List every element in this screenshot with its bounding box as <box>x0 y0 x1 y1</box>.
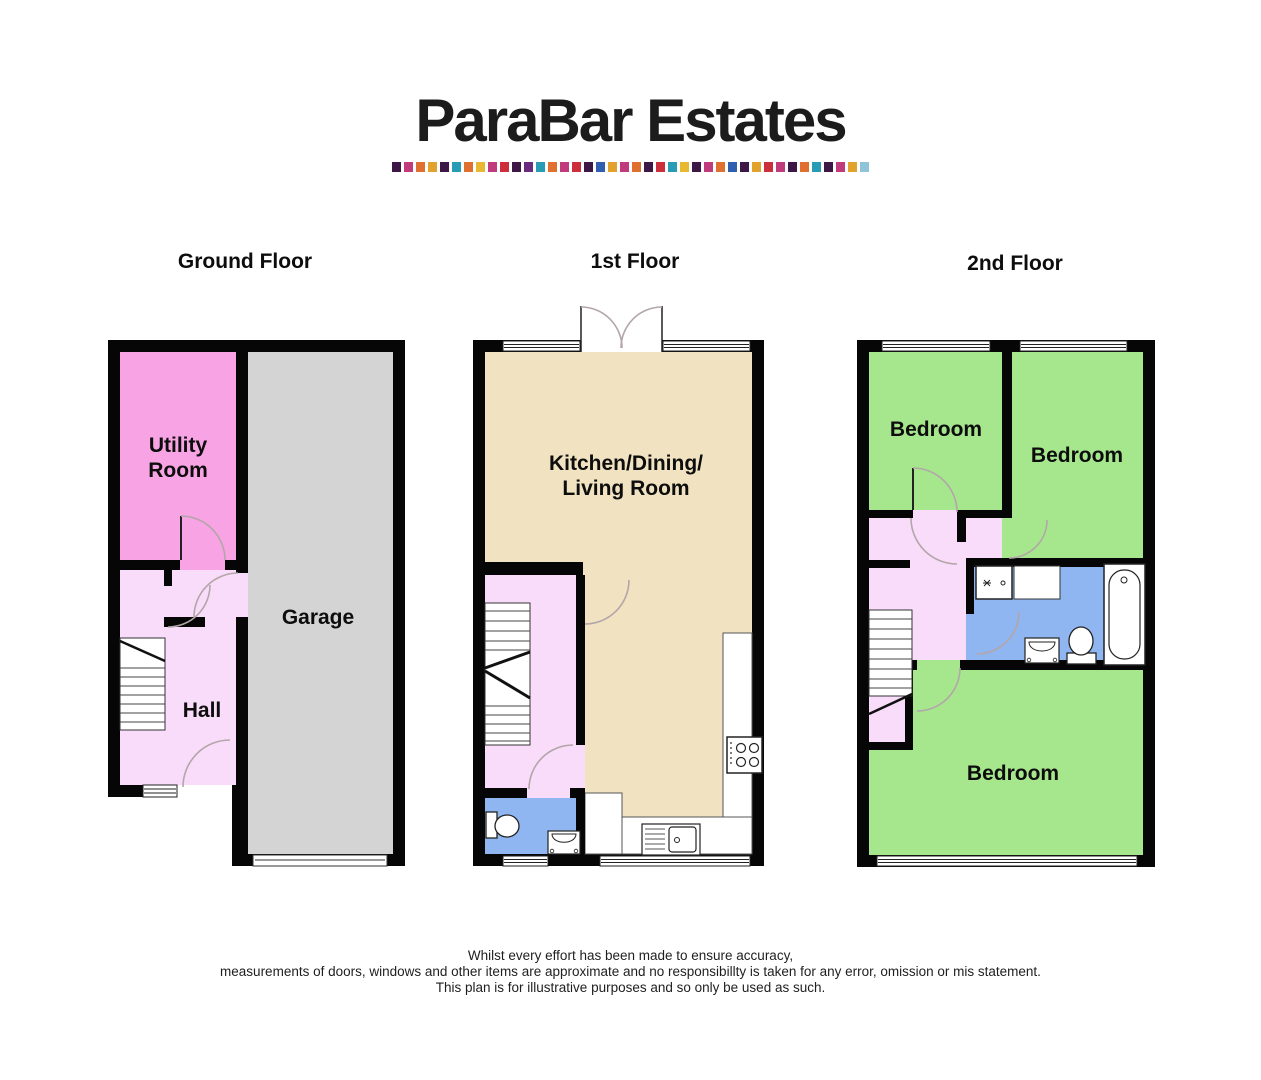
hall-window <box>143 785 177 797</box>
bedroom-front-left-window <box>882 341 990 351</box>
floorplan-page: { "logo": { "title": "ParaBar Estates", … <box>0 0 1261 1080</box>
hob <box>727 737 762 773</box>
disclaimer-line1: Whilst every effort has been made to ens… <box>0 948 1261 964</box>
front-door-opening <box>177 785 232 797</box>
bathtub <box>1104 564 1145 665</box>
second-floor-title: 2nd Floor <box>967 252 1063 275</box>
garage-floor <box>248 352 393 854</box>
bathroom-counter <box>1014 566 1060 599</box>
floor-plans-canvas: Ground Floor 1st Floor 2nd Floor <box>0 0 1261 1080</box>
bedroom-front-left-door-opening <box>913 510 957 518</box>
utility-door-opening <box>180 560 225 570</box>
bedroom-front-right-window <box>1020 341 1127 351</box>
utility-room-label-line1: Utility <box>149 434 208 457</box>
shower-cubicle <box>976 566 1012 599</box>
garage-door-opening <box>236 573 248 617</box>
bathroom-door-opening <box>966 614 974 660</box>
wc-door-opening <box>576 745 585 788</box>
ground-floor-title: Ground Floor <box>178 250 312 273</box>
disclaimer-line2: measurements of doors, windows and other… <box>0 964 1261 980</box>
bedroom-rear-door-opening <box>917 660 960 670</box>
garage-label: Garage <box>282 606 354 629</box>
wc-window <box>503 856 548 866</box>
first-floor-title: 1st Floor <box>591 250 680 273</box>
kitchen-label-line1: Kitchen/Dining/ <box>549 452 703 475</box>
french-doors <box>581 306 662 352</box>
hall-label: Hall <box>183 699 222 722</box>
first-floor-stairs <box>485 603 530 745</box>
bedroom-rear-label: Bedroom <box>967 762 1059 785</box>
wc-basin <box>548 831 580 854</box>
kitchen-window-bottom <box>600 856 750 866</box>
utility-room-label-line2: Room <box>148 459 208 482</box>
disclaimer: Whilst every effort has been made to ens… <box>0 948 1261 996</box>
bedroom-front-right-door-opening <box>1002 518 1012 558</box>
bedroom-front-right-label: Bedroom <box>1031 444 1123 467</box>
second-floor-plan: Bedroom Bedroom Bedroom <box>857 340 1155 867</box>
kitchen-window-top-left <box>503 341 580 351</box>
kitchen-label-line2: Living Room <box>562 477 689 500</box>
bedroom-rear-window <box>877 856 1137 866</box>
bedroom-front-left-label: Bedroom <box>890 418 982 441</box>
kitchen-window-top-right <box>663 341 750 351</box>
disclaimer-line3: This plan is for illustrative purposes a… <box>0 980 1261 996</box>
bathroom-basin <box>1025 638 1059 663</box>
ground-floor-plan: Utility Room Garage Hall <box>108 340 405 866</box>
ground-floor-stairs <box>120 638 165 730</box>
kitchen-sink <box>642 824 700 855</box>
first-floor-plan: Kitchen/Dining/ Living Room <box>473 306 764 866</box>
